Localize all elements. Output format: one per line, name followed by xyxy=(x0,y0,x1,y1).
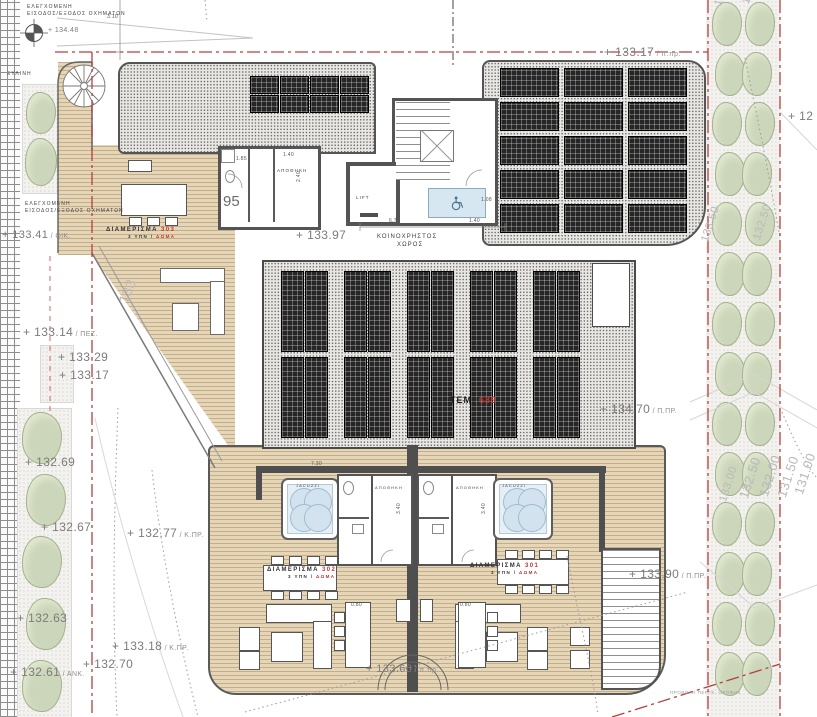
deck-bench-side xyxy=(210,281,225,335)
chair xyxy=(505,550,518,559)
bush xyxy=(715,352,745,396)
pv-panel-central xyxy=(557,271,580,352)
bush xyxy=(22,536,62,588)
pv-panel-ne xyxy=(500,102,559,131)
stool xyxy=(165,217,178,226)
elev-132-69: + 132.69 xyxy=(25,456,75,468)
bush xyxy=(745,602,775,646)
sofa-302-side xyxy=(313,621,332,669)
pv-panel-central xyxy=(494,271,517,352)
dim-1-40-b: 1.40 xyxy=(283,153,294,158)
stool xyxy=(129,217,142,226)
chair xyxy=(556,550,569,559)
stair-landing xyxy=(420,130,454,162)
bush xyxy=(712,602,742,646)
apartments-north-wall xyxy=(256,466,606,473)
pv-panel-nw xyxy=(280,95,309,113)
chair xyxy=(325,556,338,565)
pv-panel-central xyxy=(557,357,580,438)
elev-133-17: + 133.17 xyxy=(59,369,109,381)
pv-panel-ne xyxy=(500,170,559,199)
elev-132-63: + 132.63 xyxy=(17,612,67,624)
pv-panel-central xyxy=(344,271,367,352)
chair xyxy=(522,550,535,559)
jacuzzi-301-label: JACUZZI xyxy=(502,484,526,488)
pv-panel-ne xyxy=(500,136,559,165)
elev-133-14: + 133.14 / ΠΕΖ. xyxy=(23,326,98,338)
pv-panel-central xyxy=(470,271,493,352)
sink-302 xyxy=(352,524,364,534)
lift-label: LIFT xyxy=(356,196,370,201)
elev-132-77: + 132.77 / Κ.ΠΡ. xyxy=(127,527,204,539)
chair xyxy=(539,550,552,559)
storage-301-label: ΑΠΟΘΗΚΗ xyxy=(456,486,484,490)
dim-0-80-b: 0.80 xyxy=(460,603,471,608)
bush xyxy=(715,52,745,96)
deck-box xyxy=(420,599,433,622)
benchmark-symbol xyxy=(20,19,48,47)
side-table xyxy=(334,626,345,637)
pv-panel-ne xyxy=(628,170,687,199)
bush xyxy=(745,402,775,446)
apt-303-label: ΔΙΑΜΕΡΙΣΜΑ 303 xyxy=(106,227,175,233)
elev-132-67: + 132.67 xyxy=(41,521,91,533)
communal-space-label-1: ΚΟΙΝΟΧΡΗΣΤΟΣ xyxy=(377,234,437,240)
chair xyxy=(271,591,284,600)
pv-panel-central xyxy=(281,357,304,438)
bush xyxy=(742,352,772,396)
pv-panel-central xyxy=(533,271,556,352)
bush xyxy=(712,102,742,146)
partition-1 xyxy=(248,148,250,222)
bush xyxy=(745,102,775,146)
bush xyxy=(745,302,775,346)
wall-stub-east xyxy=(599,466,605,552)
elev-133-18: + 133.18 / Κ.ΠΡ. xyxy=(112,640,189,652)
sun-lounger-301 xyxy=(458,602,486,668)
elev-133-29: + 133.29 xyxy=(58,351,108,363)
pv-panel-central xyxy=(281,271,304,352)
pv-panel-nw xyxy=(310,76,339,94)
pv-panel-central xyxy=(368,357,391,438)
pv-panel-ne xyxy=(564,136,623,165)
vehicle-entry-label-2b: ΕΙΣΟΔΟΣ/ΕΞΟΔΟΣ ΟΧΗΜΑΤΩΝ xyxy=(25,209,124,214)
accessible-wc xyxy=(428,188,486,218)
chair xyxy=(307,556,320,565)
dim-1-40-a: 1.40 xyxy=(469,219,480,224)
deck-table-square xyxy=(172,303,199,331)
storage-302-label: ΑΠΟΘΗΚΗ xyxy=(375,486,403,490)
chair xyxy=(307,591,320,600)
side-table xyxy=(334,612,345,623)
bush xyxy=(742,652,772,696)
bush xyxy=(742,52,772,96)
pv-panel-ne xyxy=(564,170,623,199)
pv-panel-ne xyxy=(500,204,559,233)
dim-3-40-b: 3.40 xyxy=(482,503,487,514)
side-table xyxy=(487,626,498,637)
jacuzzi-302-label: JACUZZI xyxy=(296,484,320,488)
dim-0-80-a: 0.80 xyxy=(351,603,362,608)
chair xyxy=(289,556,302,565)
pv-panel-central xyxy=(407,357,430,438)
wheelchair-icon xyxy=(450,196,465,211)
room-number-95: 95 xyxy=(223,194,240,209)
pv-panel-ne xyxy=(628,102,687,131)
elev-133-66: + 133.66 / π.πρ. xyxy=(366,664,439,675)
chair xyxy=(522,585,535,594)
toilet-301 xyxy=(423,481,434,495)
partition-2 xyxy=(273,148,275,222)
pv-panel-central xyxy=(344,357,367,438)
pv-panel-central xyxy=(494,357,517,438)
tem-count: ΤΕΜ. 689 xyxy=(450,396,497,405)
kitchen-island xyxy=(121,184,187,216)
pv-panel-central xyxy=(431,271,454,352)
toilet-302 xyxy=(343,481,354,495)
pv-panel-nw xyxy=(250,95,279,113)
apt-301-sub: 3 ΥΠΝ / ΔΩΜΑ xyxy=(491,571,538,576)
deck-box xyxy=(570,627,590,646)
pv-panel-central xyxy=(368,271,391,352)
apt-302-sub: 3 ΥΠΝ / ΔΩΜΑ xyxy=(288,575,335,580)
apt-302-label: ΔΙΑΜΕΡΙΣΜΑ 302 xyxy=(267,567,336,573)
dim-7-30: 7.30 xyxy=(311,462,322,467)
side-table xyxy=(487,612,498,623)
elev-134-70: + 134.70 / Π.ΠΡ. xyxy=(600,403,677,415)
wc-302-partition xyxy=(339,517,369,519)
sink-301 xyxy=(432,524,444,534)
pv-panel-nw xyxy=(280,76,309,94)
chair xyxy=(539,585,552,594)
elev-132-61: + 132.61 / ΑΝΚ. xyxy=(10,666,85,678)
dim-3-40-a: 3.40 xyxy=(397,503,402,514)
bush xyxy=(712,402,742,446)
roof-plan-canvas: ΕΛΕΓΧΟΜΕΝΗΕΙΣΟΔΟΣ/ΕΞΟΔΟΣ ΟΧΗΜΑΤΩΝ+ 134.4… xyxy=(0,0,817,717)
elev-132-70: + 132.70 xyxy=(83,658,133,670)
sun-lounger-302 xyxy=(345,602,371,668)
pv-panel-central xyxy=(533,357,556,438)
armchair xyxy=(239,627,260,651)
elev-133-17-top: + 133.17 / π.πρ. xyxy=(604,46,681,58)
bush xyxy=(26,92,56,134)
skylight-slot xyxy=(592,263,630,327)
elev-133-90: + 133.90 / Π.ΠΡ. xyxy=(629,568,706,580)
dim-3-10: 3.10 xyxy=(107,15,118,20)
pv-panel-ne xyxy=(500,68,559,97)
bush xyxy=(715,152,745,196)
toilet-fixture-nw xyxy=(225,170,235,183)
apt-301-label: ΔΙΑΜΕΡΙΣΜΑ 301 xyxy=(470,563,539,569)
armchair xyxy=(527,651,548,670)
bush xyxy=(26,474,66,526)
pv-panel-ne xyxy=(628,68,687,97)
dim-2-40: 2.40 xyxy=(297,171,302,182)
coffee-table-302 xyxy=(271,632,303,662)
lift-door xyxy=(360,213,378,217)
wooden-pergola-label: ΞΥΛΙΝΗ xyxy=(7,72,32,77)
armchair xyxy=(527,627,548,651)
deck-box xyxy=(396,599,411,622)
pv-panel-nw xyxy=(340,76,369,94)
bush xyxy=(715,252,745,296)
bush xyxy=(742,152,772,196)
wall-stub-west xyxy=(256,466,262,500)
bush xyxy=(742,552,772,596)
vehicle-entry-label-2a: ΕΛΕΓΧΟΜΕΝΗ xyxy=(25,202,71,207)
side-table xyxy=(334,640,345,651)
dim-6-78: 6.78 xyxy=(389,219,400,224)
stool xyxy=(147,217,160,226)
chair xyxy=(505,585,518,594)
pv-panel-ne xyxy=(564,68,623,97)
bush xyxy=(742,252,772,296)
elev-133-41: + 133.41 / ΟΙΚ. xyxy=(2,230,71,241)
elev-12: + 12 xyxy=(788,110,813,122)
communal-space-label-2: ΧΩΡΟΣ xyxy=(397,242,423,248)
wc-301-partition xyxy=(419,517,449,519)
bush xyxy=(712,502,742,546)
bush xyxy=(745,502,775,546)
pv-panel-nw xyxy=(340,95,369,113)
storage-label-top: ΑΠΟΘΗΚΗ xyxy=(277,169,307,174)
shower-fixture xyxy=(221,149,235,163)
chair xyxy=(556,585,569,594)
pv-panel-central xyxy=(407,271,430,352)
bush xyxy=(25,138,57,186)
pv-panel-ne xyxy=(628,136,687,165)
pv-panel-ne xyxy=(628,204,687,233)
bush xyxy=(745,2,775,46)
chair xyxy=(289,591,302,600)
chair xyxy=(271,556,284,565)
pv-panel-ne xyxy=(564,102,623,131)
benchmark-elevation: + 134.48 xyxy=(48,27,79,34)
vehicle-entry-label-1a: ΕΛΕΓΧΟΜΕΝΗ xyxy=(27,5,73,10)
bush xyxy=(712,302,742,346)
pv-panel-central xyxy=(305,357,328,438)
side-table xyxy=(487,640,498,651)
armchair xyxy=(239,651,260,670)
pv-panel-nw xyxy=(250,76,279,94)
pv-panel-central xyxy=(305,271,328,352)
elev-133-97: + 133.97 xyxy=(296,229,346,241)
dim-1-08: 1.08 xyxy=(481,198,492,203)
bush xyxy=(712,2,742,46)
kitchen-counter xyxy=(128,160,152,172)
pv-panel-nw xyxy=(310,95,339,113)
dim-1-85: 1.85 xyxy=(236,157,247,162)
chair xyxy=(325,591,338,600)
bush xyxy=(715,552,745,596)
apt-303-sub: 3 ΥΠΝ / ΔΩΜΑ xyxy=(128,235,175,240)
roof-projection-label: ΠΡΟΒΟΛΗ ΠΕΡΓΚ. ΟΡΟΦΗΣ xyxy=(670,691,741,696)
pv-panel-ne xyxy=(564,204,623,233)
deck-box xyxy=(570,650,590,669)
